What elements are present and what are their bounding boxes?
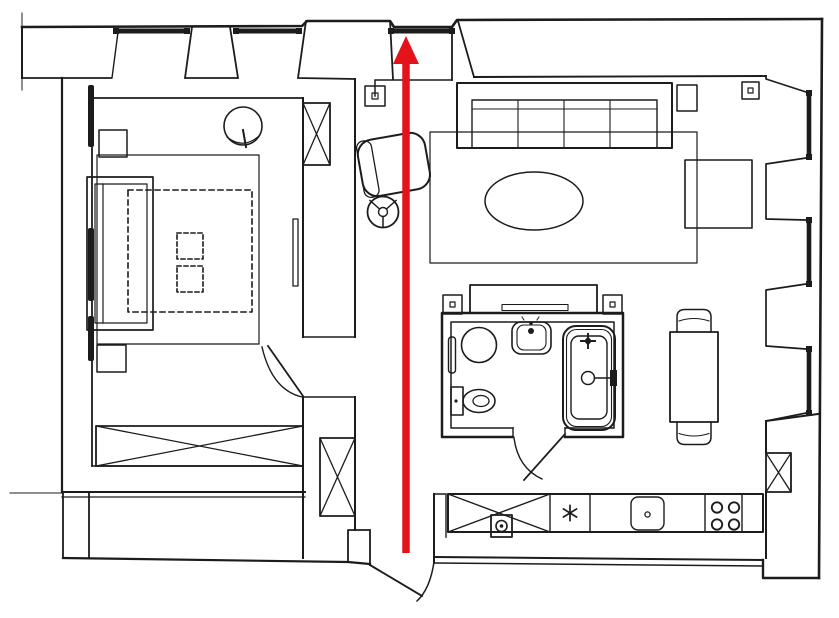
right-wall-window-splays — [766, 76, 806, 421]
bathroom-door-swing-arc — [514, 438, 542, 479]
bottom-wall-inner — [434, 557, 763, 560]
west-wall-lower — [63, 492, 89, 558]
bedroom-door-jambs — [303, 337, 355, 397]
floor-plan — [0, 0, 839, 618]
side-table — [677, 85, 697, 111]
kitchen-sink — [631, 497, 664, 530]
office-chair-seat — [355, 131, 432, 199]
bathroom — [442, 285, 623, 480]
wall-tap — [610, 370, 617, 386]
right-outer-wall — [819, 19, 822, 578]
wall-hatch-marks — [88, 85, 94, 361]
bathroom-door-leaf — [524, 434, 565, 480]
top-outer-wall — [22, 19, 822, 27]
window-end-nubs — [113, 28, 812, 416]
kitchen-wall-stub — [434, 494, 446, 537]
sofa — [457, 83, 672, 148]
oval-coffee-table — [485, 172, 583, 230]
four-ring-hob — [712, 502, 739, 529]
plan-lines — [10, 13, 822, 601]
kitchen — [448, 494, 763, 537]
socket-living — [742, 82, 759, 99]
bedroom-door — [262, 346, 303, 397]
square-table — [685, 160, 752, 228]
potted-plant — [224, 107, 262, 147]
wardrobe-above-bathroom — [470, 285, 597, 313]
entry-door — [370, 562, 434, 601]
socket-bath-left — [443, 295, 462, 314]
wall-extension-lines — [10, 13, 62, 493]
entry-left-jamb-step — [348, 530, 370, 565]
living-rug — [430, 132, 697, 263]
washbasin — [512, 317, 551, 354]
dining-area — [670, 310, 718, 445]
bottom-wall-outer — [434, 563, 763, 566]
washing-machine — [462, 328, 497, 363]
office-chair-base — [368, 197, 399, 228]
wall-sockets — [365, 82, 759, 314]
bedroom-radiator — [293, 219, 298, 286]
bathroom-door-jambs — [513, 428, 565, 437]
bathroom-door — [514, 434, 565, 480]
towel-radiator — [449, 337, 456, 373]
bedroom-rug — [97, 155, 259, 344]
bottom-right-wall-step — [763, 560, 819, 578]
dining-table — [670, 332, 718, 422]
top-wall-pier-3 — [452, 21, 474, 80]
dining-chair-top — [677, 310, 711, 333]
crossed-cabinet — [448, 494, 550, 532]
dashed-cushion-2 — [177, 266, 203, 292]
socket-bath-right — [603, 295, 622, 314]
dashed-cushion-1 — [177, 233, 203, 259]
windows — [113, 28, 812, 416]
direction-arrow — [393, 36, 419, 553]
living-top-inner — [474, 76, 766, 77]
living-room — [430, 83, 752, 263]
bedroom-wardrobe-crossed — [96, 426, 303, 466]
nightstand-top — [99, 130, 127, 157]
arrow-head — [393, 36, 419, 64]
meter-box — [491, 515, 512, 537]
bottom-left-wall — [63, 558, 370, 564]
entry-door-leaf — [370, 565, 422, 596]
lower-duct-shaft — [320, 438, 355, 516]
window-reveal — [112, 32, 118, 78]
corner-duct-shaft — [766, 453, 791, 492]
corridor-top-inner — [375, 80, 452, 96]
burner-asterisk — [564, 506, 577, 521]
nightstand-bottom — [97, 345, 126, 372]
upper-duct-shaft — [303, 103, 330, 165]
floor-plan-canvas — [0, 0, 839, 618]
bathtub — [563, 326, 617, 430]
top-wall-pier-1 — [185, 27, 238, 78]
dining-chair-bottom — [677, 422, 711, 445]
top-wall-pier-2 — [298, 21, 393, 79]
drain-shower-handle — [582, 372, 595, 385]
bedroom-door-swing-arc — [262, 347, 302, 397]
bedroom — [87, 85, 303, 397]
toilet — [451, 387, 495, 415]
